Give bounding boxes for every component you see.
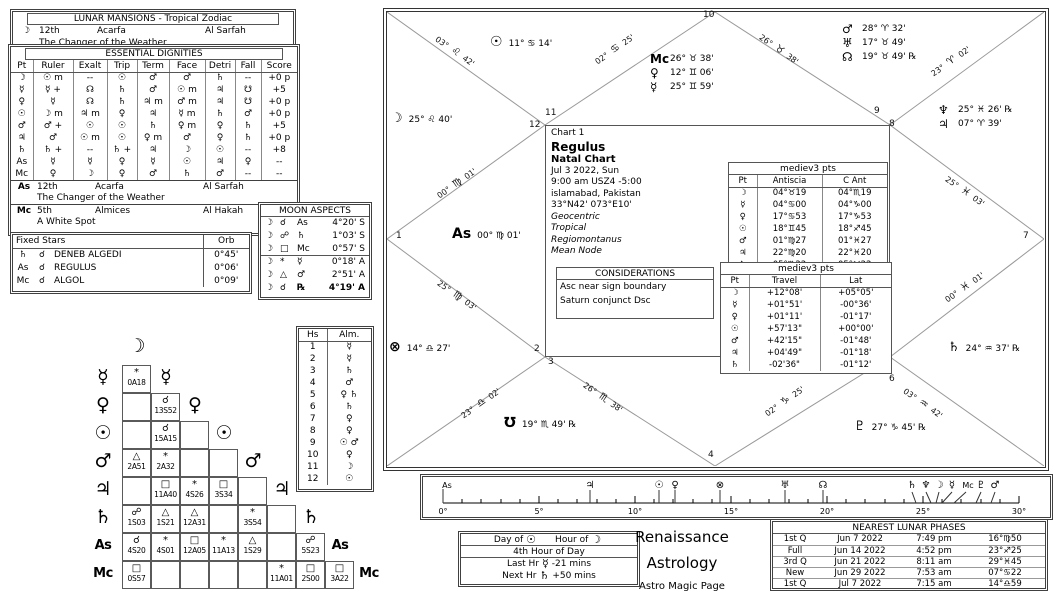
cell: +8 (261, 144, 297, 156)
cell: ♀ (205, 132, 235, 144)
star-name: DENEB ALGEDI (51, 248, 203, 261)
almuten-glyph: ☽ (327, 461, 371, 473)
almuten-glyph: ☉ (327, 473, 371, 485)
planet-glyph: ♃ (729, 247, 757, 259)
uranus-icon: ♅ (842, 36, 862, 50)
asc-label: As (452, 226, 477, 242)
phase-date: Jul 7 2022 (817, 578, 903, 589)
aspect-cell-empty (122, 421, 151, 449)
antiscia-row: ☿04°♋0004°♑00 (729, 199, 887, 211)
cell: +5 (261, 84, 297, 96)
cell: -- (73, 72, 107, 84)
moon-aspect-row: ☽△♂2°51' A (261, 269, 369, 282)
sun-icon: ☉ (655, 480, 664, 491)
aspect-value: 11A40 (152, 490, 179, 500)
phase-date: Jun 21 2022 (817, 556, 903, 567)
lunar-mansions-title: LUNAR MANSIONS - Tropical Zodiac (27, 13, 279, 25)
cell: -01°12' (820, 359, 891, 371)
house-no: 8 (299, 425, 327, 437)
aspect-cell-empty (151, 561, 180, 589)
asc-marker: As (442, 481, 452, 490)
house-no: 5 (299, 389, 327, 401)
aspect-cell-empty (209, 449, 238, 477)
planet-label-saturn: ♄24° ♒ 37' ℞ (948, 340, 1020, 355)
cell: ☽ m (33, 108, 73, 120)
planet-label-sun: ☉11° ♋ 14' (490, 34, 552, 50)
cell: ♂ (137, 72, 169, 84)
col-header: Score (261, 60, 297, 72)
jupiter-icon: ♃ (938, 117, 958, 131)
planet-label-pluto: ♇27° ♑ 45' ℞ (854, 419, 926, 434)
cell: ♂ (235, 108, 261, 120)
phase-position: 29°♓45 (965, 556, 1045, 567)
cell: +42'15" (749, 335, 820, 347)
moon-position: 25° ♌ 40' (409, 115, 453, 125)
cell: ♀ (107, 168, 137, 180)
aspect-cell-empty (209, 505, 238, 533)
phase-name: 1st Q (773, 534, 817, 545)
mars-stack: ♂28° ♈ 32' ♅17° ♉ 49' ☊19° ♉ 49' ℞ (842, 22, 917, 64)
cell: -- (235, 144, 261, 156)
planet-glyph: ☉ (729, 223, 757, 235)
phase-time: 4:52 pm (903, 545, 965, 556)
cell: ♀ (235, 156, 261, 168)
aspect-cell: □12A05 (180, 533, 209, 561)
cell: +00°00' (820, 323, 891, 335)
house-no: 7 (299, 413, 327, 425)
mercury-position: 25° ♊ 59' (670, 82, 714, 92)
neptune-icon: ♆ (938, 103, 958, 117)
cell: 04°♋00 (757, 199, 822, 211)
house-number-11: 11 (545, 108, 556, 118)
aspect-cell-empty (122, 477, 151, 505)
house-number-2: 2 (534, 344, 540, 354)
mars-position: 28° ♈ 32' (862, 24, 906, 34)
aspect-value: 12A31 (181, 518, 208, 528)
dignity-row: ♂♂ +☉☉♄♀ m♀♄+5 (11, 120, 297, 132)
house-number-10: 10 (703, 10, 714, 20)
mansion-name: Almices (95, 205, 203, 216)
almuten-glyph: ♀ (327, 425, 371, 437)
mc-mansion-row: Mc 5th Almices Al Hakah (11, 204, 297, 216)
cell: 04°♉19 (757, 187, 822, 199)
next-hour-value: +50 mins (552, 570, 596, 582)
cell: ♂ (11, 120, 33, 132)
antiscia-row: ☉18°♊4518°♐45 (729, 223, 887, 235)
orb-value: 0°45' (203, 248, 249, 261)
cell: 17°♋53 (757, 211, 822, 223)
dignity-row: ♀☿☊♄♃ m♂ m♃☋+0 p (11, 96, 297, 108)
house-no: 11 (299, 461, 327, 473)
mansion-name: Acarfa (97, 25, 205, 37)
sun-icon: ☉ (209, 422, 239, 444)
south-node-icon: ℧ (504, 415, 522, 431)
cell: ♄ (107, 96, 137, 108)
col-header: Face (169, 60, 205, 72)
aspect-value: 1S21 (152, 518, 179, 528)
aspect-cell: *4S01 (151, 533, 180, 561)
almuten-glyph: ♀ ♄ (327, 389, 371, 401)
moon-icon: ☽ (13, 25, 39, 37)
tick-label: 25° (916, 507, 930, 516)
aspect-cell: ☌13S52 (151, 393, 180, 421)
cell: ♃ (137, 144, 169, 156)
cell: ♃ (205, 96, 235, 108)
mc-label: Mc (13, 274, 33, 287)
aspect-icon: ☌ (280, 282, 297, 295)
aspect-value: 0A18 (123, 378, 150, 388)
aspect-cell: *4S26 (180, 477, 209, 505)
fixed-stars-panel: Fixed StarsOrb ♄☌DENEB ALGEDI0°45' As☌RE… (10, 232, 252, 294)
fixed-star-row: Mc☌ALGOL0°09' (13, 274, 249, 287)
cell: ☉ (169, 156, 205, 168)
cell: ♄ (137, 120, 169, 132)
aspect-icon: ☌ (152, 424, 179, 434)
moon-aspects-title: MOON ASPECTS (261, 205, 369, 217)
cell: ☉ (73, 120, 107, 132)
jupiter-icon: ♃ (88, 478, 118, 500)
almuten-glyph: ♄ (327, 401, 371, 413)
cell: ☉ (205, 144, 235, 156)
cell: ♀ (205, 120, 235, 132)
asc-label: As (11, 181, 37, 192)
conjunction-icon: ☌ (33, 248, 51, 261)
aspect-cell: ☍1S03 (122, 505, 151, 533)
aspect-value: 3S34 (210, 490, 237, 500)
aspect-cell: *3S54 (238, 505, 267, 533)
tick-label: 10° (628, 507, 642, 516)
cell: ♄ (205, 108, 235, 120)
cell: ☉ (107, 72, 137, 84)
essential-dignities-table: PtRulerExaltTripTermFaceDetriFallScore ☽… (11, 60, 297, 180)
chart-name: Regulus (551, 140, 889, 154)
aspect-value: 1S03 (123, 518, 150, 528)
phase-time: 7:53 am (903, 567, 965, 578)
cell: ♃ (205, 156, 235, 168)
mc-label: Mc (88, 566, 118, 581)
moon-icon: ☽ (935, 480, 944, 491)
antiscia-row: ♂01°♍2701°♓27 (729, 235, 887, 247)
phase-time: 7:15 am (903, 578, 965, 589)
antiscia-row: ☽04°♉1904°♏19 (729, 187, 887, 199)
moon-icon: ☽ (122, 335, 152, 357)
moon-icon: ☽ (265, 256, 280, 269)
cell: ☉ m (33, 72, 73, 84)
cell: +12°08' (749, 287, 820, 299)
aspect-cell: □3S34 (209, 477, 238, 505)
house-number-9: 9 (874, 106, 880, 116)
moon-icon: ☽ (265, 269, 280, 282)
dignity-row: Mc♀☽♀♂♄♂---- (11, 168, 297, 180)
cell: +05°05' (820, 287, 891, 299)
lunar-phases-title: NEAREST LUNAR PHASES (773, 522, 1045, 534)
cell: 18°♐45 (822, 223, 887, 235)
travel-row: ♂+42'15"-01°48' (721, 335, 891, 347)
cell: ♃ m (73, 108, 107, 120)
phase-date: Jun 29 2022 (817, 567, 903, 578)
house-number-7: 7 (1023, 231, 1029, 241)
aspect-icon: □ (152, 480, 179, 490)
brand-line-1: Renaissance (598, 524, 766, 550)
col-header: Ruler (33, 60, 73, 72)
next-hour-label: Next Hr (502, 570, 536, 582)
aspect-icon: ☌ (123, 536, 150, 546)
moon-icon: ☽ (265, 243, 280, 255)
north-node-icon: ☊ (842, 50, 862, 64)
aspect-cell: □3A22 (325, 561, 354, 589)
phase-position: 23°♐25 (965, 545, 1045, 556)
moon-icon: ☽ (391, 111, 409, 126)
travel-row: ♀+01°11'-01°17' (721, 311, 891, 323)
aspect-target: As (297, 217, 321, 230)
mc-position: 26° ♉ 38' (670, 54, 714, 64)
travel-title: mediev3 pts (721, 263, 891, 275)
cell: ♃ (137, 108, 169, 120)
planet-glyph: ☉ (721, 323, 749, 335)
saturn-icon: ♄ (13, 248, 33, 261)
antiscia-title: mediev3 pts (729, 163, 887, 175)
mars-icon: ♂ (88, 450, 118, 472)
travel-table: PtTravelLat ☽+12°08'+05°05' ☿+01°51'-00°… (721, 275, 891, 371)
cell: +01°11' (749, 311, 820, 323)
travel-row: ☉+57'13"+00°00' (721, 323, 891, 335)
phase-name: New (773, 567, 817, 578)
asc-label: As (13, 261, 33, 274)
aspect-value: 2A32 (152, 462, 179, 472)
phase-row: 1st QJul 7 20227:15 am14°♎59 (773, 578, 1045, 589)
aspect-cell: *11A01 (267, 561, 296, 589)
phase-position: 14°♎59 (965, 578, 1045, 589)
phase-position: 07°♋22 (965, 567, 1045, 578)
aspect-cell: □2S00 (296, 561, 325, 589)
almuten-glyph: ☿ (327, 341, 371, 353)
venus-position: 12° ♊ 06' (670, 68, 714, 78)
col-header: Exalt (73, 60, 107, 72)
aspect-icon: □ (210, 480, 237, 490)
antiscia-panel: mediev3 pts PtAntisciaC Ant ☽04°♉1904°♏1… (728, 162, 888, 272)
phase-name: 3rd Q (773, 556, 817, 567)
saturn-position: 24° ♒ 37' ℞ (966, 344, 1021, 354)
cell: 01°♓27 (822, 235, 887, 247)
cell: ♄ (235, 132, 261, 144)
cell: 17°♑53 (822, 211, 887, 223)
mars-icon: ♂ (842, 22, 862, 36)
cell: ♄ (107, 84, 137, 96)
chart-label: Chart 1 (551, 128, 889, 140)
cell: -01°17' (820, 311, 891, 323)
col-header: Lat (820, 275, 891, 287)
almuten-row: 9☉ ♂ (299, 437, 371, 449)
aspect-orb: 1°03' S (321, 230, 365, 243)
aspect-cell: *11A13 (209, 533, 238, 561)
aspect-target: ♂ (297, 269, 321, 282)
astro-magic-page: LUNAR MANSIONS - Tropical Zodiac ☽ 12th … (0, 0, 1061, 600)
moon-icon: ☽ (265, 230, 280, 243)
fixed-star-row: ♄☌DENEB ALGEDI0°45' (13, 248, 249, 261)
house-number-3: 3 (548, 357, 554, 367)
aspect-cell-empty (180, 421, 209, 449)
fixed-stars-title: Fixed Stars (13, 235, 203, 248)
house-number-4: 4 (708, 450, 714, 460)
col-header: Detri (205, 60, 235, 72)
aspect-cell: △1S21 (151, 505, 180, 533)
cell: +01°51' (749, 299, 820, 311)
sun-position: 11° ♋ 14' (509, 39, 553, 49)
neptune-icon: ♆ (922, 480, 931, 491)
dignity-row: ☽☉ m--☉♂♂♄--+0 p (11, 72, 297, 84)
antiscia-row: ♃22°♍2022°♓20 (729, 247, 887, 259)
consideration-item: Saturn conjunct Dsc (557, 295, 713, 308)
aspect-cell-empty (238, 477, 267, 505)
tick-label: 0° (438, 507, 447, 516)
cell: +57'13" (749, 323, 820, 335)
aspect-orb: 4°20' S (321, 217, 365, 230)
col-header: C Ant (822, 175, 887, 187)
mc-marker: Mc (962, 481, 973, 490)
house-number-1: 1 (396, 231, 402, 241)
aspect-value: 2A51 (123, 462, 150, 472)
mars-icon: ♂ (238, 450, 268, 472)
aspect-icon: △ (152, 508, 179, 518)
almuten-row: 11☽ (299, 461, 371, 473)
aspect-icon: ☍ (297, 536, 324, 546)
venus-icon: ♀ (88, 394, 118, 416)
saturn-icon: ♄ (536, 570, 552, 582)
aspect-cell: *2A32 (151, 449, 180, 477)
aspect-icon: ☍ (280, 230, 297, 243)
aspect-cell-empty (122, 393, 151, 421)
moon-aspect-row: ☽☍♄1°03' S (261, 230, 369, 243)
tick-label: 20° (820, 507, 834, 516)
page-title: Astro Magic Page (598, 576, 766, 598)
house-no: 9 (299, 437, 327, 449)
planet-glyph: ♀ (721, 311, 749, 323)
aspect-orb: 0°18' A (321, 256, 365, 269)
aspect-value: 3S54 (239, 518, 266, 528)
cell: -- (235, 72, 261, 84)
almuten-row: 1☿ (299, 341, 371, 353)
almuten-glyph: ♄ (327, 365, 371, 377)
aspect-target: Mc (297, 243, 321, 255)
phase-row: NewJun 29 20227:53 am07°♋22 (773, 567, 1045, 578)
antiscia-row: ♀17°♋5317°♑53 (729, 211, 887, 223)
moon-aspect-row: ☽*☿0°18' A (261, 256, 369, 269)
cell: -- (73, 144, 107, 156)
mercury-icon: ☿ (88, 366, 118, 388)
aspect-value: 13S52 (152, 406, 179, 416)
aspect-icon: △ (239, 536, 266, 546)
cell: 22°♍20 (757, 247, 822, 259)
venus-icon: ♀ (671, 480, 678, 491)
aspect-target: ♄ (297, 230, 321, 243)
almuten-row: 8♀ (299, 425, 371, 437)
antiscia-table: PtAntisciaC Ant ☽04°♉1904°♏19 ☿04°♋0004°… (729, 175, 887, 271)
almuten-glyph: ♂ (327, 377, 371, 389)
col-header: Trip (107, 60, 137, 72)
neptune-jupiter-stack: ♆25° ♓ 26' ℞ ♃07° ♈ 39' (938, 103, 1013, 131)
cell: ♀ (11, 96, 33, 108)
aspect-value: 3A22 (326, 574, 353, 584)
cell: ☿ + (33, 84, 73, 96)
cell: ☽ (73, 168, 107, 180)
south-node-position: 19° ♏ 49' ℞ (522, 420, 577, 430)
mansion-ordinal: 12th (39, 25, 97, 37)
aspect-icon: * (123, 368, 150, 378)
aspect-icon: △ (123, 452, 150, 462)
phase-position: 16°♍50 (965, 534, 1045, 545)
last-hour-value: -21 mins (552, 558, 591, 570)
cell: ☉ (11, 108, 33, 120)
cell: ♂ (137, 168, 169, 180)
cell: +5 (261, 120, 297, 132)
saturn-icon: ♄ (948, 340, 966, 355)
cell: +0 p (261, 108, 297, 120)
asc-position: 00° ♍ 01' (477, 231, 521, 241)
pluto-icon: ♇ (977, 480, 986, 491)
degree-ruler-panel: As ♃ ☉ ♀ ⊗ ♅ ☊ ♄ ♆ ☽ ☿ Mc ♇ ♂ 0° 5° 10° … (420, 474, 1053, 520)
dignity-row: ☿☿ +☊♄♂☉ m♃☋+5 (11, 84, 297, 96)
planet-glyph: ☽ (721, 287, 749, 299)
aspect-value: 11A01 (268, 574, 295, 584)
planet-glyph: ♄ (721, 359, 749, 371)
north-node-icon: ☊ (819, 480, 828, 491)
mc-stack: Mc26° ♉ 38' ♀12° ♊ 06' ☿25° ♊ 59' (650, 52, 714, 94)
cell: 18°♊45 (757, 223, 822, 235)
cell: ♀ (107, 108, 137, 120)
aspect-icon: □ (181, 536, 208, 546)
aspect-cell: □11A40 (151, 477, 180, 505)
asc-label: As (325, 538, 355, 553)
mercury-icon: ☿ (650, 80, 670, 94)
aspect-value: 0S57 (123, 574, 150, 584)
travel-row: ☽+12°08'+05°05' (721, 287, 891, 299)
almuten-row: 10♀ (299, 449, 371, 461)
cell: ♀ (107, 156, 137, 168)
mansion-arabic: Al Sarfah (205, 25, 293, 37)
cell: Mc (11, 168, 33, 180)
mercury-icon: ☿ (949, 480, 955, 491)
almuten-row: 12☉ (299, 473, 371, 485)
aspect-value: 4S26 (181, 490, 208, 500)
aspect-cell: △1S29 (238, 533, 267, 561)
aspect-icon: ☌ (152, 396, 179, 406)
cell: ☿ (33, 156, 73, 168)
travel-row: ☿+01°51'-00°36' (721, 299, 891, 311)
house-no: 1 (299, 341, 327, 353)
cell: ♃ (11, 132, 33, 144)
house-no: 2 (299, 353, 327, 365)
travel-row: ♃+04'49"-01°18' (721, 347, 891, 359)
cell: -- (261, 168, 297, 180)
cell: ☊ (73, 84, 107, 96)
moon-aspect-row: ☽☌As4°20' S (261, 217, 369, 230)
fortune-position: 14° ♎ 27' (407, 344, 451, 354)
aspect-icon: ☌ (280, 217, 297, 230)
cell: ☿ (73, 156, 107, 168)
cell: ♀ m (169, 120, 205, 132)
cell: ♃ m (137, 96, 169, 108)
aspect-icon: * (268, 564, 295, 574)
cell: ♀ (33, 168, 73, 180)
star-name: REGULUS (51, 261, 203, 274)
cell: +0 p (261, 96, 297, 108)
cell: 01°♍27 (757, 235, 822, 247)
aspect-cell: △12A31 (180, 505, 209, 533)
aspect-cell: ☍5S23 (296, 533, 325, 561)
col-header: Fall (235, 60, 261, 72)
cell: ☋ (235, 96, 261, 108)
jupiter-position: 07° ♈ 39' (958, 119, 1002, 129)
